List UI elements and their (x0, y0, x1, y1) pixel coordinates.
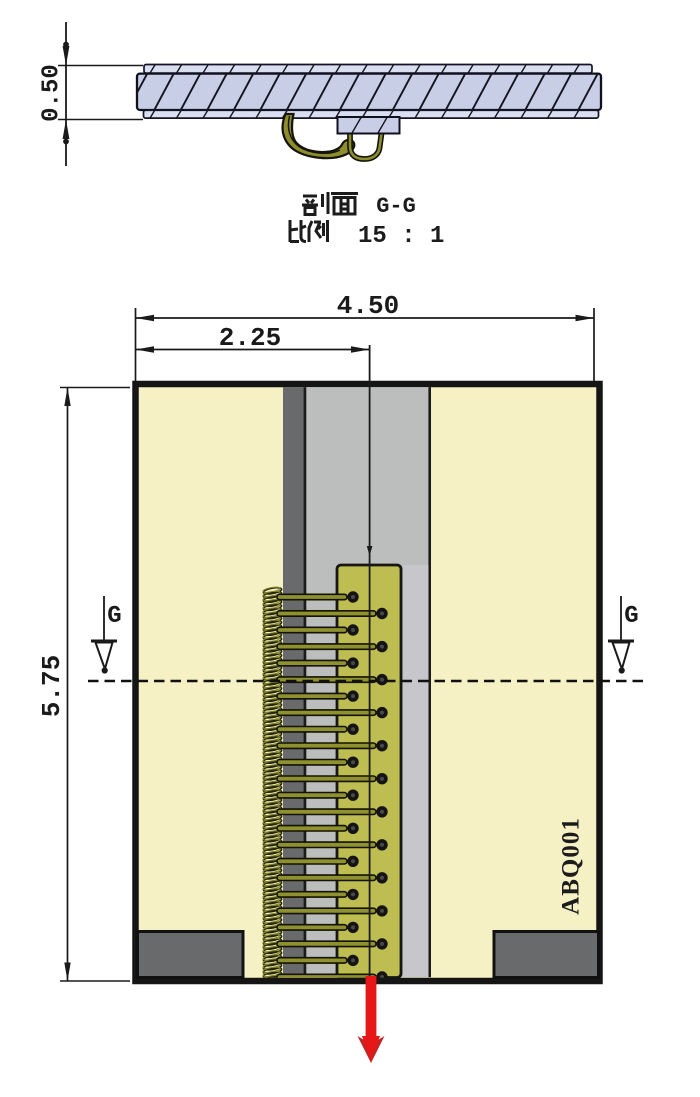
svg-text:15 : 1: 15 : 1 (358, 223, 444, 250)
svg-text:0.50: 0.50 (38, 64, 65, 122)
svg-text:4.50: 4.50 (337, 291, 399, 321)
svg-text:G-G: G-G (376, 194, 416, 219)
svg-text:G: G (624, 603, 638, 630)
svg-text:2.25: 2.25 (219, 323, 281, 353)
svg-text:5.75: 5.75 (37, 655, 67, 717)
svg-text:ABQ001: ABQ001 (558, 817, 585, 915)
svg-text:G: G (107, 603, 121, 630)
